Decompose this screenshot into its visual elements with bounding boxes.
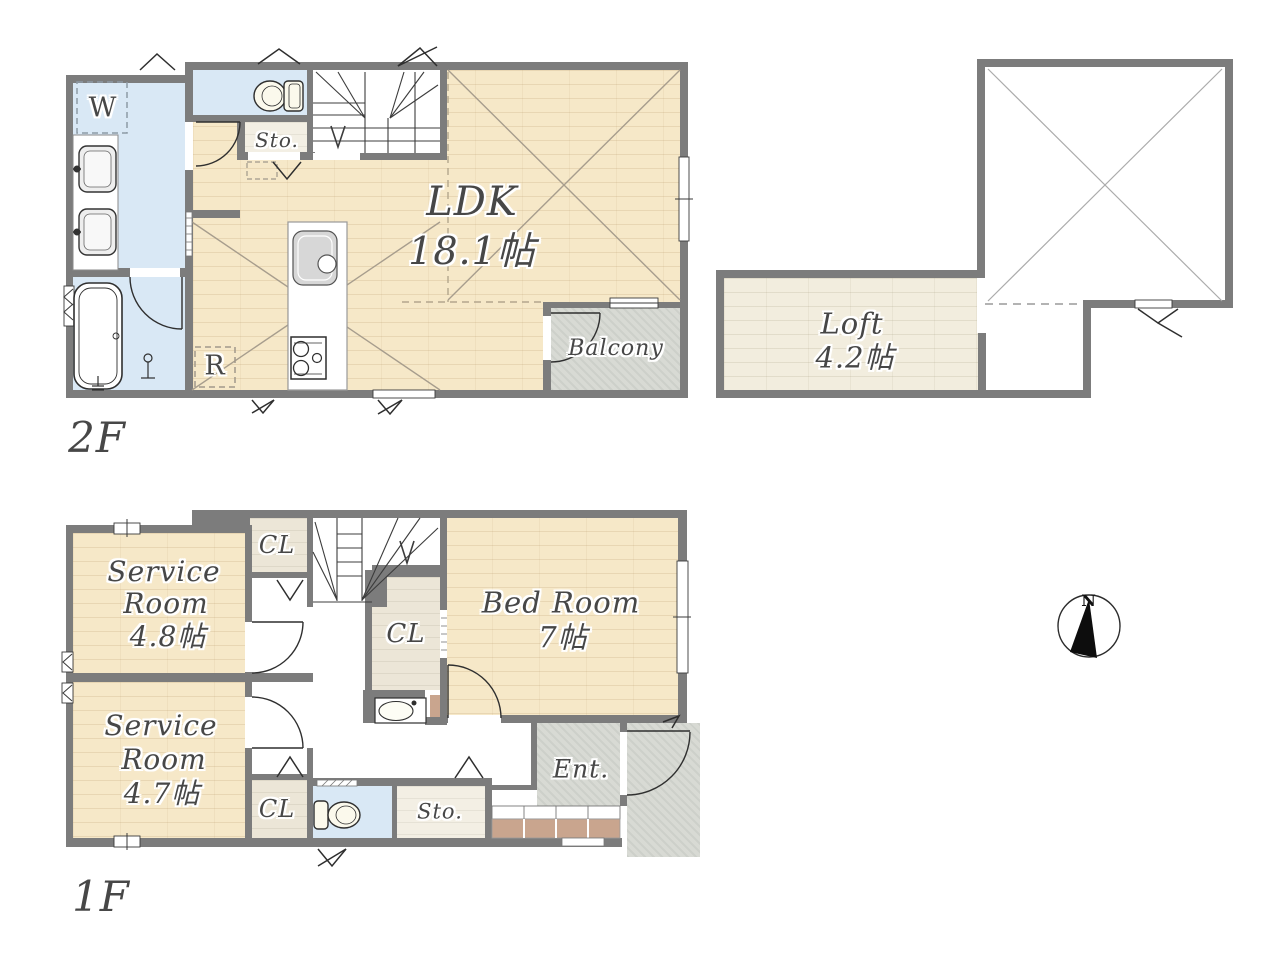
- service2-line2: Room: [121, 746, 206, 774]
- cl-bottom-label: CL: [259, 797, 295, 821]
- cl-top-label: CL: [259, 533, 295, 557]
- service1-line1: Service: [107, 558, 220, 586]
- entrance-label: Ent.: [553, 757, 609, 782]
- toilet-2f-icon: [254, 81, 303, 111]
- bathtub-icon: [74, 283, 155, 390]
- stairs-2f: [313, 72, 440, 153]
- service1-line2: Room: [123, 590, 208, 618]
- floor1-label: 1F: [72, 876, 130, 918]
- vanity-icon: [375, 698, 426, 723]
- door-arcs: [130, 122, 690, 795]
- service1-size: 4.8帖: [130, 623, 207, 651]
- loft-label: Loft: [820, 310, 883, 339]
- compass-north-label: N: [1081, 593, 1097, 609]
- stove-icon: [291, 337, 326, 379]
- stairs-1f: [313, 518, 438, 602]
- toilet-1f-icon: [314, 801, 360, 829]
- service2-size: 4.7帖: [124, 780, 201, 808]
- vent-markers: [140, 47, 1182, 866]
- cl-mid-label: CL: [386, 621, 425, 647]
- floor-plan: W Sto. LDK 18.1帖 Balcony R Loft 4.2帖 2F …: [0, 0, 1280, 960]
- pipe-space-outline: [247, 162, 277, 179]
- balcony-label: Balcony: [568, 338, 663, 360]
- kitchen-counter: [288, 222, 347, 390]
- void-cross-marks: [988, 69, 1222, 301]
- washer-mark-label: W: [89, 95, 118, 122]
- windows: [62, 157, 1172, 847]
- ldk-label: LDK: [426, 182, 518, 222]
- entrance-step: [492, 806, 620, 846]
- fridge-mark-label: R: [204, 353, 225, 380]
- loft-size-label: 4.2帖: [815, 344, 894, 373]
- wash-counter: [73, 135, 118, 270]
- bedroom-label: Bed Room: [482, 589, 641, 618]
- storage1f-label: Sto.: [417, 802, 463, 823]
- service2-line1: Service: [104, 712, 217, 740]
- storage2f-label: Sto.: [255, 130, 299, 150]
- plan-linework: [0, 0, 1280, 960]
- floor2-label: 2F: [68, 417, 126, 459]
- bedroom-size-label: 7帖: [538, 624, 587, 653]
- ldk-size-label: 18.1帖: [408, 232, 536, 270]
